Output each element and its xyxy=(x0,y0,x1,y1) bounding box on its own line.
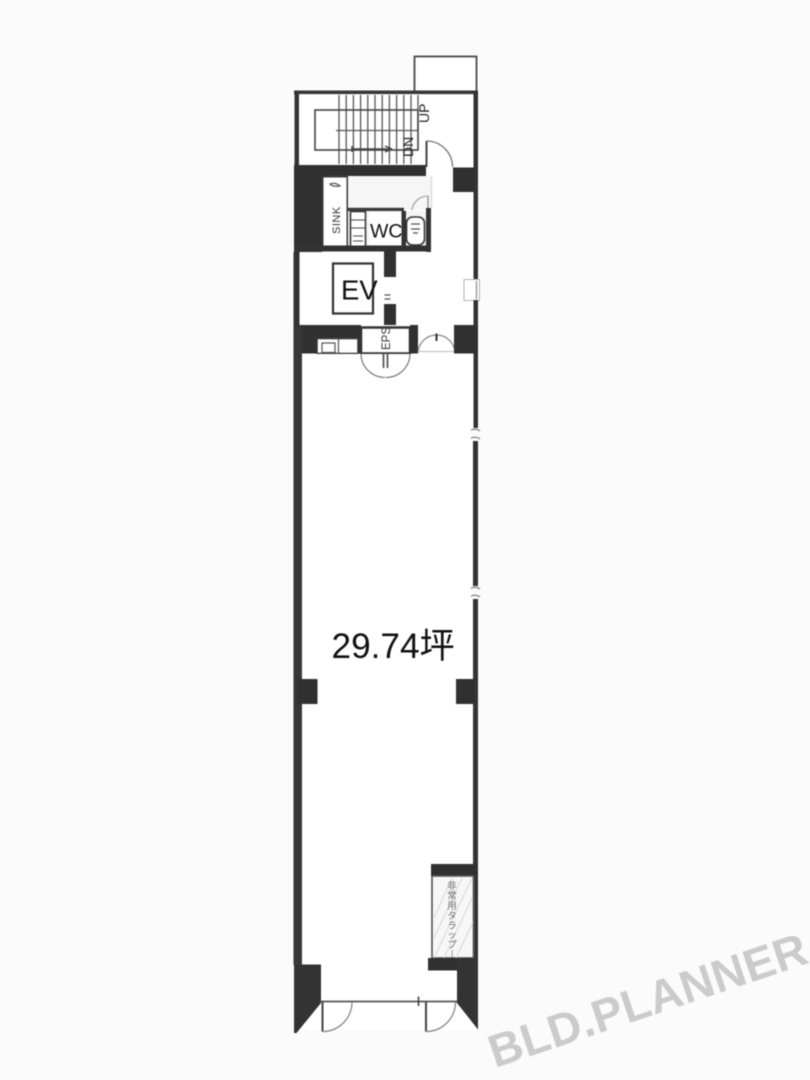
svg-text:SINK: SINK xyxy=(331,206,343,234)
svg-text:29.74坪: 29.74坪 xyxy=(332,627,455,666)
svg-text:|: | xyxy=(451,949,453,958)
svg-text:WC: WC xyxy=(370,221,403,243)
svg-text:EPS: EPS xyxy=(381,327,393,350)
svg-text:DN: DN xyxy=(400,137,416,157)
svg-text:UP: UP xyxy=(416,104,432,123)
svg-text:EV: EV xyxy=(341,275,378,306)
